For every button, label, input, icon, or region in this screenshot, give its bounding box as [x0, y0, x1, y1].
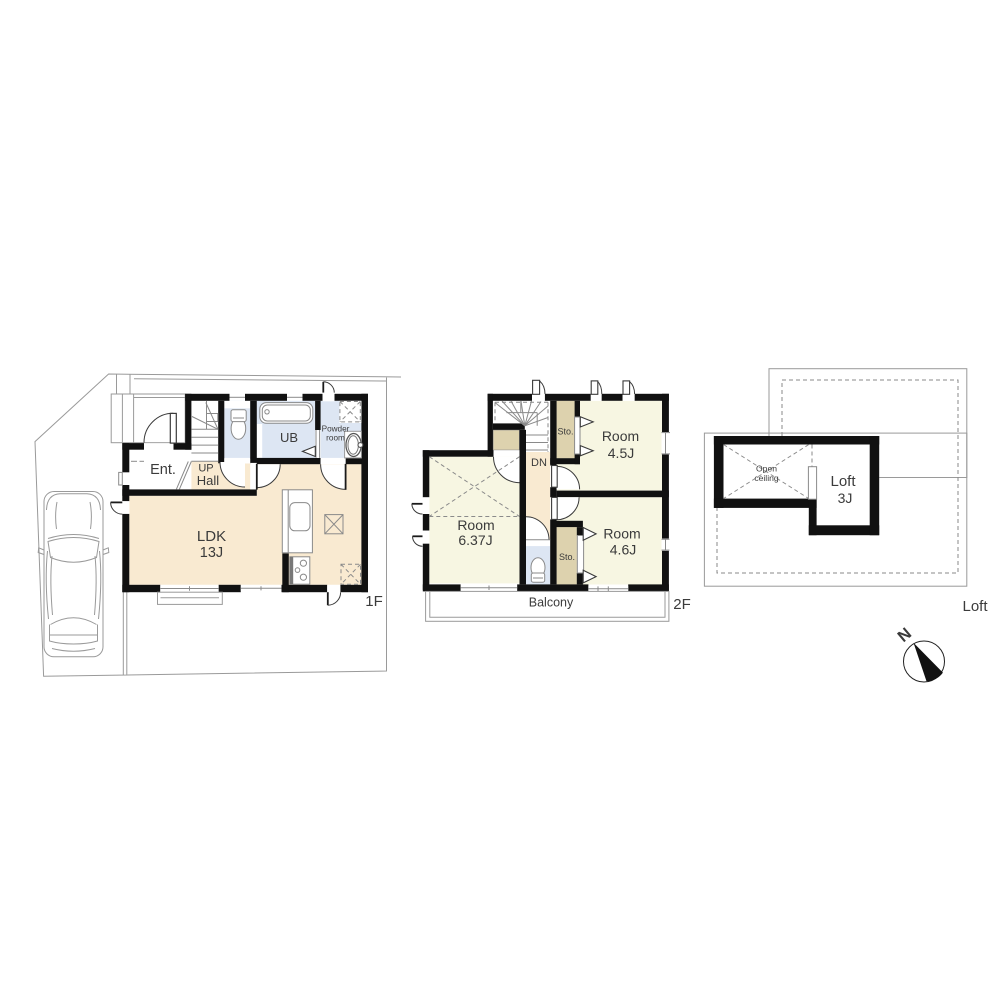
svg-text:Open: Open [756, 464, 777, 474]
svg-text:room: room [326, 434, 345, 443]
svg-text:6.37J: 6.37J [458, 532, 492, 548]
svg-text:Hall: Hall [197, 473, 220, 488]
svg-text:Sto.: Sto. [559, 552, 575, 562]
svg-text:1F: 1F [365, 593, 383, 610]
svg-text:UB: UB [280, 430, 298, 445]
svg-text:2F: 2F [673, 596, 691, 613]
svg-text:4.6J: 4.6J [610, 542, 636, 558]
svg-text:4.5J: 4.5J [608, 445, 634, 461]
svg-text:Balcony: Balcony [529, 596, 574, 610]
svg-text:LDK: LDK [197, 528, 226, 545]
svg-text:3J: 3J [838, 490, 853, 506]
svg-text:Loft: Loft [830, 473, 856, 490]
svg-text:Ent.: Ent. [150, 462, 176, 478]
svg-text:Room: Room [603, 526, 640, 542]
svg-text:13J: 13J [200, 545, 223, 561]
svg-text:Sto.: Sto. [557, 427, 573, 437]
svg-text:DN: DN [531, 457, 547, 469]
svg-text:Loft: Loft [962, 598, 988, 615]
svg-text:Room: Room [457, 517, 494, 533]
svg-text:Room: Room [602, 428, 639, 444]
svg-text:Powder: Powder [322, 425, 350, 434]
svg-text:ceiling: ceiling [754, 473, 779, 483]
